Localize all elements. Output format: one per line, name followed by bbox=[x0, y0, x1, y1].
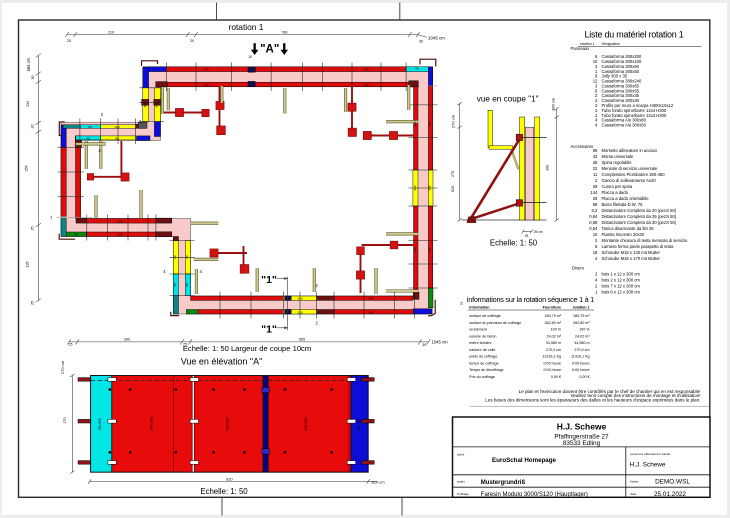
svg-text:25: 25 bbox=[525, 234, 529, 238]
svg-text:28: 28 bbox=[593, 196, 598, 201]
svg-text:300: 300 bbox=[124, 337, 130, 341]
svg-text:300: 300 bbox=[143, 102, 147, 107]
svg-text:100 %: 100 % bbox=[551, 328, 562, 332]
svg-text:0,00 €: 0,00 € bbox=[579, 375, 589, 379]
svg-text:50: 50 bbox=[74, 233, 78, 237]
svg-text:60x300: 60x300 bbox=[357, 418, 361, 430]
svg-text:240: 240 bbox=[428, 247, 432, 252]
svg-text:H.J. Schewe: H.J. Schewe bbox=[630, 461, 666, 468]
svg-text:bois 1 x 12 x 300 cm: bois 1 x 12 x 300 cm bbox=[602, 272, 641, 277]
svg-text:10: 10 bbox=[248, 55, 252, 59]
svg-text:Gancio di sollevamento An20: Gancio di sollevamento An20 bbox=[602, 178, 657, 183]
svg-text:282,80 m²: 282,80 m² bbox=[573, 321, 590, 325]
svg-text:240x300: 240x300 bbox=[150, 417, 154, 430]
svg-text:60: 60 bbox=[173, 255, 177, 259]
svg-text:0,84: 0,84 bbox=[589, 214, 598, 219]
svg-text:34,580 m: 34,580 m bbox=[546, 341, 561, 345]
svg-text:0,54: 0,54 bbox=[589, 226, 598, 231]
svg-text:Faresin Modulo 3000/S120 (Haup: Faresin Modulo 3000/S120 (Hauptlager) bbox=[481, 492, 588, 498]
svg-text:date: date bbox=[630, 492, 636, 496]
svg-text:210: 210 bbox=[108, 30, 114, 34]
svg-text:"1": "1" bbox=[261, 323, 277, 335]
svg-text:Distanziatore Completo da 30 (: Distanziatore Completo da 30 (pezzi 50) bbox=[602, 220, 677, 225]
svg-text:80: 80 bbox=[88, 125, 92, 129]
svg-text:Distanziatore Completo da 25 (: Distanziatore Completo da 25 (pezzi 50) bbox=[602, 214, 677, 219]
svg-text:Cassaforma Alu 300x50: Cassaforma Alu 300x50 bbox=[602, 123, 647, 128]
svg-text:bois 7 x 12 x 300 cm: bois 7 x 12 x 300 cm bbox=[602, 284, 641, 289]
svg-text:240: 240 bbox=[413, 121, 417, 126]
svg-text:25 cm: 25 cm bbox=[534, 230, 543, 234]
svg-text:poids du coffrage: poids du coffrage bbox=[469, 355, 497, 359]
svg-text:surface de coffrage: surface de coffrage bbox=[469, 314, 501, 318]
svg-text:270: 270 bbox=[451, 171, 455, 177]
svg-text:22: 22 bbox=[593, 166, 598, 171]
svg-text:Schraube M18 x 140 mit Mutter: Schraube M18 x 140 mit Mutter bbox=[602, 250, 661, 255]
svg-text:380 cm: 380 cm bbox=[551, 97, 556, 111]
svg-text:0:00 heure: 0:00 heure bbox=[572, 362, 590, 366]
svg-text:Divers: Divers bbox=[572, 265, 584, 270]
svg-text:780: 780 bbox=[282, 30, 288, 34]
svg-text:Placca a dado orientabile: Placca a dado orientabile bbox=[602, 196, 650, 201]
svg-text:60: 60 bbox=[185, 255, 189, 259]
svg-text:270: 270 bbox=[63, 418, 67, 424]
svg-text:130: 130 bbox=[297, 310, 302, 314]
svg-text:0,68: 0,68 bbox=[589, 220, 598, 225]
svg-text:144: 144 bbox=[590, 190, 598, 195]
svg-text:55: 55 bbox=[415, 67, 419, 71]
svg-text:0:00 heure: 0:00 heure bbox=[572, 368, 590, 372]
svg-text:Placca a dado: Placca a dado bbox=[602, 190, 629, 195]
svg-text:0:00 heure: 0:00 heure bbox=[543, 362, 561, 366]
svg-text:24,02 m³: 24,02 m³ bbox=[575, 334, 590, 338]
svg-text:180,79 m²: 180,79 m² bbox=[544, 314, 561, 318]
svg-text:300: 300 bbox=[155, 102, 159, 107]
svg-text:Spina regolabile: Spina regolabile bbox=[602, 160, 633, 165]
svg-text:130: 130 bbox=[297, 297, 302, 301]
svg-text:30: 30 bbox=[422, 343, 426, 347]
svg-text:240: 240 bbox=[363, 83, 368, 87]
svg-text:Prix du coffrage: Prix du coffrage bbox=[469, 375, 495, 379]
svg-text:Liste du matériel rotation 1: Liste du matériel rotation 1 bbox=[584, 29, 683, 39]
svg-text:Piastra riscontro 20x20: Piastra riscontro 20x20 bbox=[602, 232, 645, 237]
svg-text:volume de béton: volume de béton bbox=[469, 334, 496, 338]
svg-text:240: 240 bbox=[363, 68, 368, 72]
svg-text:810 cm: 810 cm bbox=[372, 479, 386, 484]
svg-text:client: client bbox=[457, 453, 464, 457]
svg-text:Morsetto allineatore in acciai: Morsetto allineatore in acciaio bbox=[602, 148, 658, 153]
svg-text:200: 200 bbox=[117, 233, 122, 237]
svg-text:informations sur la rotation: informations sur la rotation séquence 1 … bbox=[467, 295, 594, 304]
svg-text:34,580 m: 34,580 m bbox=[574, 341, 589, 345]
svg-text:43: 43 bbox=[593, 154, 598, 159]
svg-text:0,00 €: 0,00 € bbox=[551, 375, 561, 379]
svg-text:fichier: fichier bbox=[630, 480, 638, 484]
svg-text:Echelle: 1: 50: Echelle: 1: 50 bbox=[200, 487, 248, 496]
svg-text:temps de coffrage: temps de coffrage bbox=[469, 362, 498, 366]
svg-text:88: 88 bbox=[593, 148, 598, 153]
svg-text:vue en coupe "1": vue en coupe "1" bbox=[477, 95, 539, 104]
svg-text:Echelle: 1: 50: Echelle: 1: 50 bbox=[490, 239, 538, 248]
svg-text:20: 20 bbox=[31, 125, 35, 129]
svg-text:28: 28 bbox=[593, 160, 598, 165]
svg-text:65x300: 65x300 bbox=[98, 418, 102, 430]
svg-text:200: 200 bbox=[117, 219, 122, 223]
svg-text:65: 65 bbox=[185, 283, 189, 287]
svg-text:240: 240 bbox=[203, 68, 208, 72]
svg-text:Schraube M18 x 170 mit Mutter: Schraube M18 x 170 mit Mutter bbox=[602, 256, 661, 261]
svg-text:75: 75 bbox=[460, 302, 464, 306]
svg-text:Mustergrundriß: Mustergrundriß bbox=[481, 480, 526, 486]
svg-text:270,0 cm: 270,0 cm bbox=[574, 348, 589, 352]
svg-text:3: 3 bbox=[139, 119, 141, 123]
svg-text:240: 240 bbox=[413, 247, 417, 252]
svg-text:25.01.2022: 25.01.2022 bbox=[654, 491, 686, 498]
svg-text:Coffrage: Coffrage bbox=[457, 492, 469, 496]
svg-text:629: 629 bbox=[451, 186, 455, 192]
svg-text:25: 25 bbox=[31, 301, 35, 305]
svg-text:mètre linéaire: mètre linéaire bbox=[469, 341, 491, 345]
svg-text:83533 Edling: 83533 Edling bbox=[563, 440, 601, 447]
svg-text:134: 134 bbox=[26, 101, 30, 107]
svg-text:11: 11 bbox=[593, 172, 598, 177]
svg-text:11316,1 Kg: 11316,1 Kg bbox=[571, 355, 590, 359]
svg-text:"1": "1" bbox=[261, 274, 277, 286]
svg-text:28: 28 bbox=[593, 184, 598, 189]
svg-text:20: 20 bbox=[190, 39, 194, 43]
svg-text:0,2: 0,2 bbox=[592, 208, 598, 213]
svg-text:270 cm: 270 cm bbox=[450, 114, 455, 128]
svg-text:hauteur de voile: hauteur de voile bbox=[469, 348, 495, 352]
svg-text:bois 2 x 12 x 300 cm: bois 2 x 12 x 300 cm bbox=[602, 278, 641, 283]
svg-text:255: 255 bbox=[25, 166, 29, 172]
svg-text:Mensole di servizio universale: Mensole di servizio universale bbox=[602, 166, 659, 171]
svg-text:H.J. Schewe: H.J. Schewe bbox=[557, 421, 607, 431]
svg-text:195: 195 bbox=[26, 262, 30, 268]
svg-text:Cuneo per spina: Cuneo per spina bbox=[602, 184, 633, 189]
svg-text:24,02 m³: 24,02 m³ bbox=[547, 334, 562, 338]
svg-text:270,0 cm: 270,0 cm bbox=[546, 348, 561, 352]
svg-text:Accessoires: Accessoires bbox=[571, 144, 594, 149]
svg-text:Temps de décoffrage: Temps de décoffrage bbox=[469, 368, 503, 372]
svg-text:60: 60 bbox=[86, 136, 90, 140]
svg-text:Désignation: Désignation bbox=[602, 42, 621, 46]
svg-text:65: 65 bbox=[173, 283, 177, 287]
svg-text:30: 30 bbox=[419, 40, 423, 44]
svg-text:240: 240 bbox=[428, 121, 432, 126]
svg-text:100 %: 100 % bbox=[579, 328, 590, 332]
svg-text:240: 240 bbox=[368, 297, 373, 301]
svg-text:EuroSchal Homepage: EuroSchal Homepage bbox=[492, 457, 557, 464]
svg-text:Echelle: 1: 50 Largeur de co: Echelle: 1: 50 Largeur de coupe 10cm bbox=[183, 344, 311, 353]
svg-text:1045 cm: 1045 cm bbox=[432, 340, 449, 345]
svg-text:"A": "A" bbox=[260, 44, 279, 56]
svg-text:120: 120 bbox=[114, 125, 119, 129]
svg-text:240x300: 240x300 bbox=[304, 417, 308, 430]
svg-text:90: 90 bbox=[115, 136, 119, 140]
svg-text:rotation 1: rotation 1 bbox=[573, 306, 590, 310]
svg-text:projet: projet bbox=[457, 480, 465, 484]
svg-text:1045 cm: 1045 cm bbox=[428, 35, 445, 40]
svg-text:270 cm: 270 cm bbox=[60, 360, 65, 374]
svg-text:Distanziatore Completo da 20 (: Distanziatore Completo da 20 (pezzi 50) bbox=[602, 208, 677, 213]
svg-text:10: 10 bbox=[593, 232, 598, 237]
svg-text:personne effectuant le travail: personne effectuant le travail bbox=[630, 452, 670, 456]
svg-text:18: 18 bbox=[593, 250, 598, 255]
svg-text:282,80 m²: 282,80 m² bbox=[544, 321, 561, 325]
svg-text:bois 8 x 12 x 300 cm: bois 8 x 12 x 300 cm bbox=[602, 290, 641, 295]
svg-text:180,79 m²: 180,79 m² bbox=[573, 314, 590, 318]
svg-text:Les bases des dimensions sont: Les bases des dimensions sont les épaiss… bbox=[485, 397, 700, 402]
svg-text:Barra filettata D.W. 75: Barra filettata D.W. 75 bbox=[602, 202, 644, 207]
svg-text:11316,1 Kg: 11316,1 Kg bbox=[543, 355, 562, 359]
svg-text:Vue en élévation "A": Vue en élévation "A" bbox=[181, 356, 263, 366]
svg-text:Morsa universale: Morsa universale bbox=[602, 154, 635, 159]
svg-text:300: 300 bbox=[413, 185, 417, 190]
svg-text:rotation 1: rotation 1 bbox=[229, 22, 264, 32]
svg-text:300: 300 bbox=[428, 185, 432, 190]
svg-text:25: 25 bbox=[31, 227, 35, 231]
svg-text:684 cm: 684 cm bbox=[26, 57, 31, 71]
svg-text:240: 240 bbox=[203, 83, 208, 87]
svg-text:Lamiera ferma piede parapetto: Lamiera ferma piede parapetto di testa bbox=[602, 244, 675, 249]
svg-text:information: information bbox=[469, 306, 490, 310]
svg-text:98: 98 bbox=[593, 202, 598, 207]
svg-text:300: 300 bbox=[545, 165, 549, 171]
svg-text:0:00 heure: 0:00 heure bbox=[543, 368, 561, 372]
svg-text:240: 240 bbox=[368, 310, 373, 314]
svg-text:25: 25 bbox=[69, 343, 73, 347]
svg-text:Montante chiusura di testa men: Montante chiusura di testa mensola di se… bbox=[602, 238, 689, 243]
svg-text:205x300: 205x300 bbox=[226, 417, 230, 430]
svg-text:30: 30 bbox=[31, 76, 35, 80]
svg-text:Tanica disarmante da litri 25: Tanica disarmante da litri 25 bbox=[602, 226, 655, 231]
svg-text:810: 810 bbox=[226, 477, 232, 481]
svg-text:665: 665 bbox=[299, 337, 305, 341]
svg-text:Complessivo Piombatore 250-450: Complessivo Piombatore 250-450 bbox=[602, 172, 666, 177]
svg-text:Fourniture: Fourniture bbox=[543, 306, 561, 310]
svg-text:rendement: rendement bbox=[469, 328, 487, 332]
svg-text:Panneaux: Panneaux bbox=[571, 46, 591, 51]
svg-text:25: 25 bbox=[67, 39, 71, 43]
svg-text:DEMO.WSL: DEMO.WSL bbox=[655, 479, 690, 486]
svg-text:surface du panneau de coffrage: surface du panneau de coffrage bbox=[469, 321, 521, 325]
